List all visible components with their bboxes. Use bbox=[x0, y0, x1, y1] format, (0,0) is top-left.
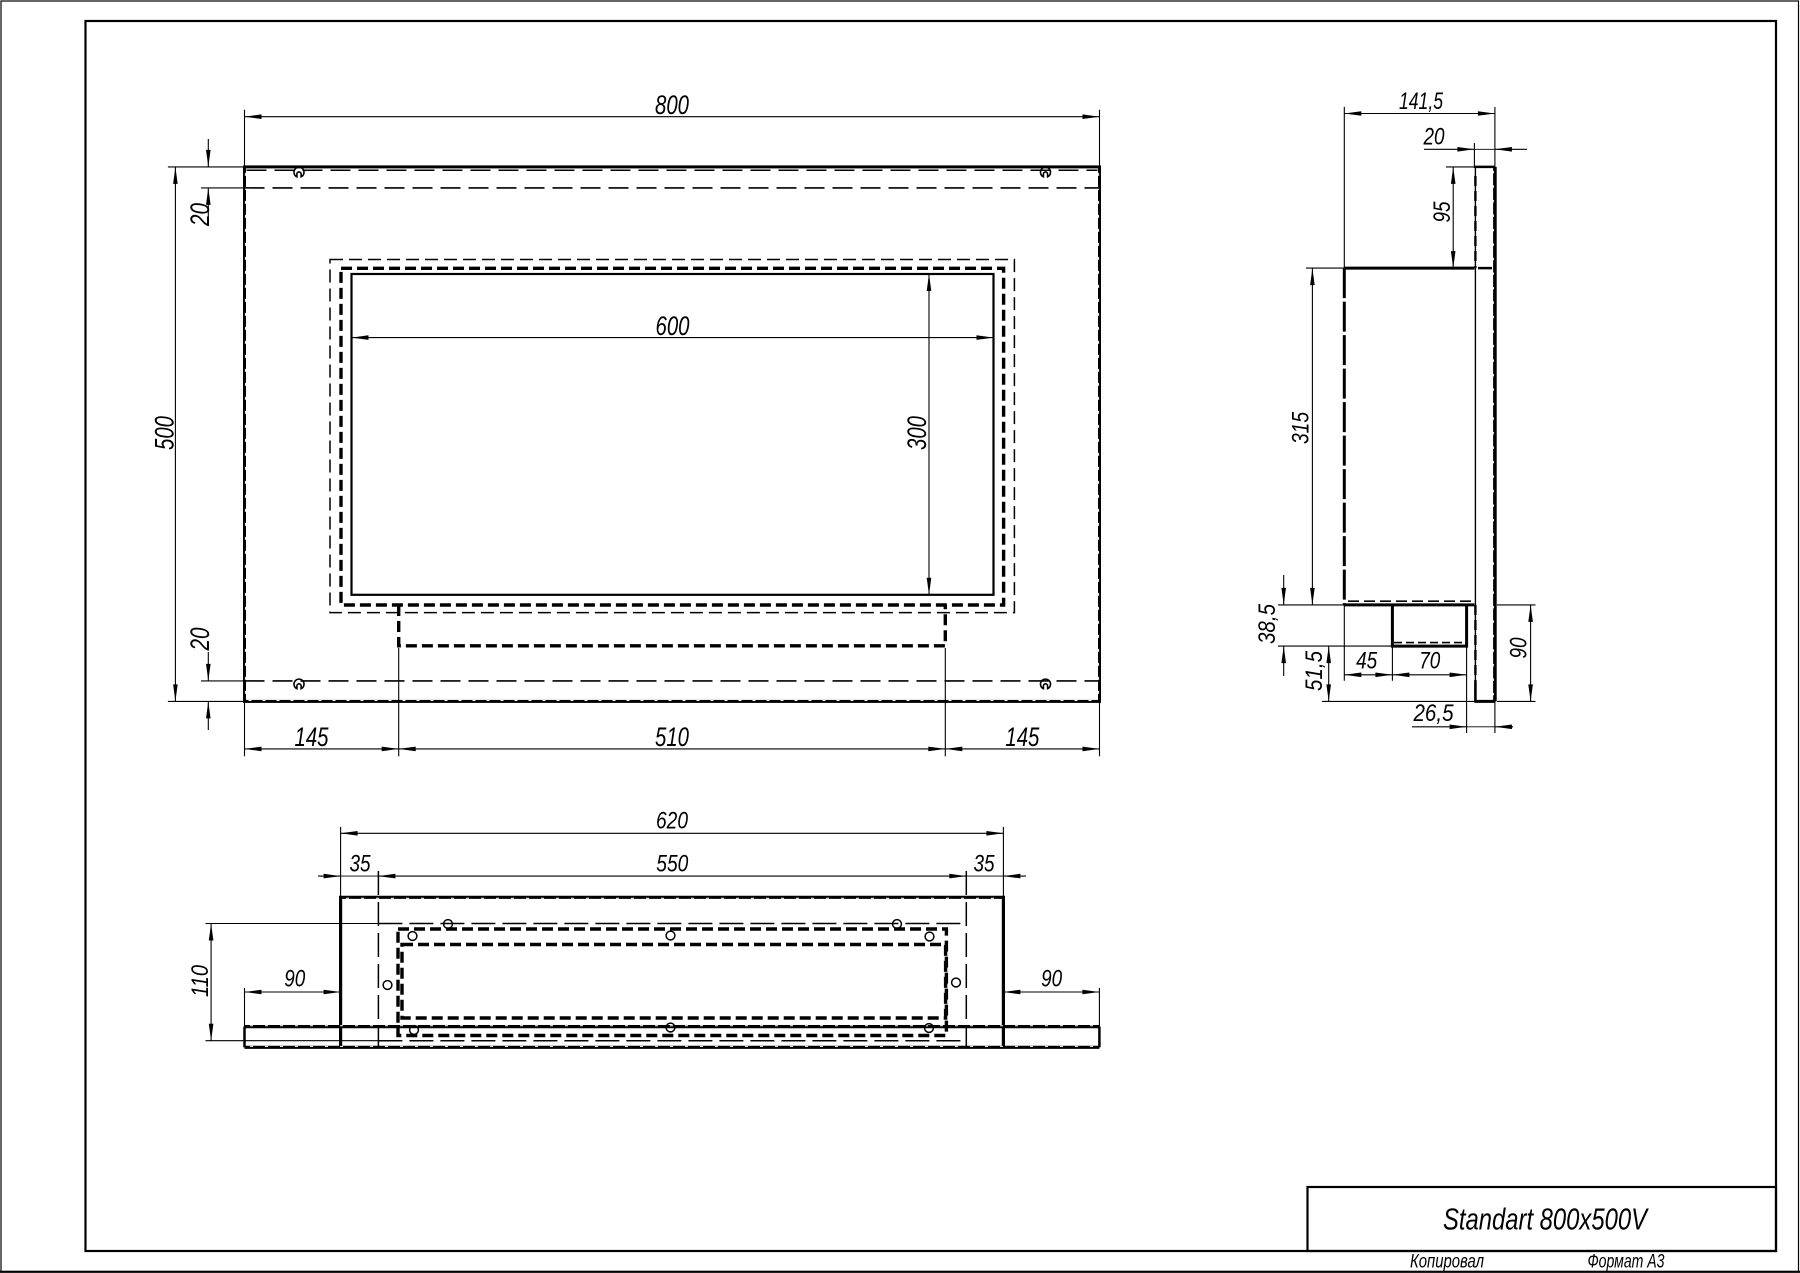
svg-text:45: 45 bbox=[1356, 648, 1378, 675]
svg-text:90: 90 bbox=[1506, 637, 1533, 659]
svg-text:38,5: 38,5 bbox=[1254, 603, 1281, 644]
svg-text:Копировал: Копировал bbox=[1410, 1252, 1484, 1273]
svg-text:95: 95 bbox=[1429, 201, 1456, 223]
svg-text:315: 315 bbox=[1288, 411, 1315, 444]
svg-text:600: 600 bbox=[656, 311, 690, 341]
svg-text:500: 500 bbox=[150, 416, 180, 450]
svg-text:Формат А3: Формат А3 bbox=[1588, 1252, 1665, 1273]
svg-text:300: 300 bbox=[902, 416, 932, 450]
svg-text:110: 110 bbox=[187, 964, 214, 997]
svg-text:510: 510 bbox=[655, 722, 689, 752]
svg-text:620: 620 bbox=[656, 808, 689, 835]
svg-text:145: 145 bbox=[1005, 722, 1040, 752]
svg-text:141,5: 141,5 bbox=[1399, 88, 1443, 115]
svg-text:51,5: 51,5 bbox=[1301, 650, 1328, 691]
svg-text:800: 800 bbox=[655, 90, 689, 120]
svg-text:35: 35 bbox=[350, 850, 372, 877]
svg-text:90: 90 bbox=[284, 965, 306, 992]
svg-text:20: 20 bbox=[185, 628, 215, 652]
svg-text:35: 35 bbox=[974, 850, 996, 877]
svg-text:20: 20 bbox=[185, 203, 215, 227]
svg-text:20: 20 bbox=[1423, 124, 1445, 151]
svg-text:70: 70 bbox=[1419, 648, 1441, 675]
svg-text:90: 90 bbox=[1041, 965, 1063, 992]
svg-text:550: 550 bbox=[656, 850, 689, 877]
svg-text:26,5: 26,5 bbox=[1413, 700, 1454, 727]
svg-text:145: 145 bbox=[295, 722, 330, 752]
svg-text:Standart 800x500V: Standart 800x500V bbox=[1443, 1202, 1650, 1237]
